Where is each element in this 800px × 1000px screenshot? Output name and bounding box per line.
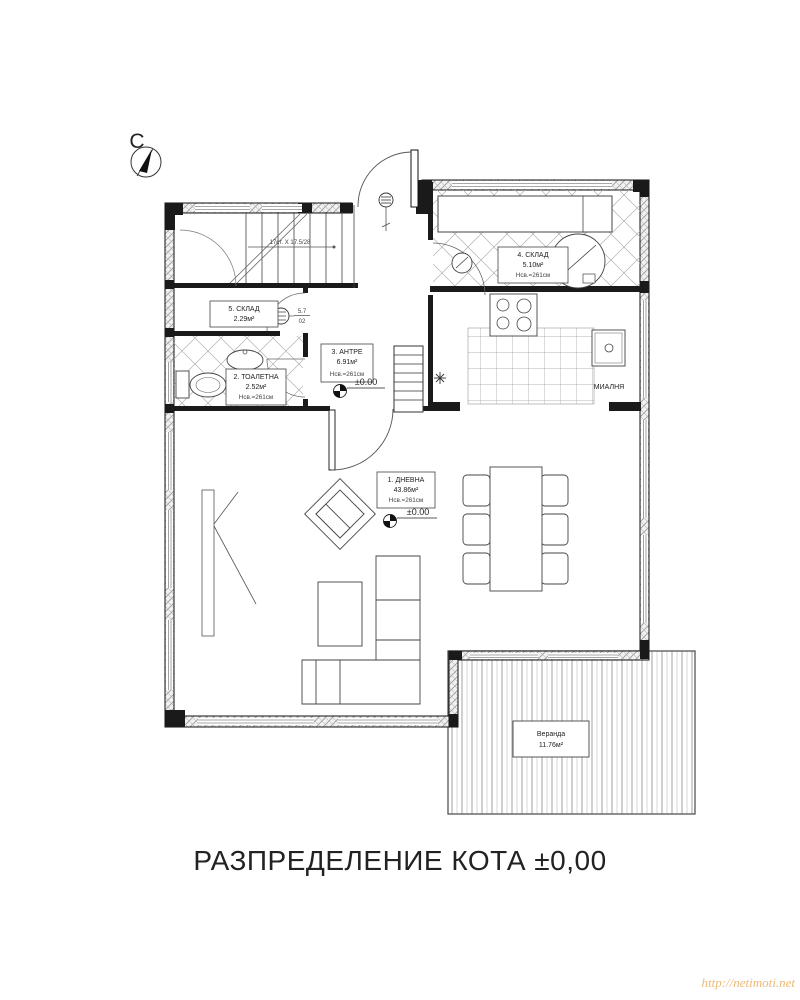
dining-table bbox=[490, 467, 542, 591]
coffee-table bbox=[318, 582, 362, 646]
storage4-area-value: 5.10м² bbox=[523, 262, 544, 269]
dining-chair bbox=[541, 475, 568, 506]
door-tag-numerator: 5.7 bbox=[298, 309, 307, 315]
window-left-living-2 bbox=[166, 510, 173, 588]
plan-title: РАЗПРЕДЕЛЕНИЕ КОТА ±0,00 bbox=[193, 845, 606, 876]
scullery-label: МИАЛНЯ bbox=[594, 384, 624, 391]
dining-chair bbox=[463, 514, 490, 545]
storage5-room: 5.7 02 5. СКЛАД 2.29м² bbox=[210, 293, 310, 331]
dining-chair bbox=[541, 553, 568, 584]
window-top-left-1 bbox=[195, 204, 250, 212]
living-door bbox=[329, 409, 393, 470]
toilet-height-value: Нсв.=261см bbox=[239, 394, 273, 401]
floor-drain-icon bbox=[452, 253, 472, 273]
window-top-left-2 bbox=[262, 204, 302, 212]
window-right-dining-1 bbox=[641, 420, 648, 518]
storage4-counter bbox=[438, 196, 612, 232]
fridge-snowflake-icon bbox=[434, 372, 446, 384]
entry-hall: 3. АНТРЕ 6.91м² Нсв.=261см ±0.00 bbox=[321, 344, 423, 470]
veranda-name: Веранда bbox=[537, 731, 565, 738]
window-right-dining-2 bbox=[641, 535, 648, 623]
window-left-living-3 bbox=[166, 620, 173, 690]
dining-chair bbox=[463, 553, 490, 584]
toilet-bowl-icon bbox=[176, 371, 226, 398]
section-marker-icon bbox=[379, 193, 393, 231]
washbasin-icon bbox=[227, 350, 263, 370]
entry-name: 3. АНТРЕ bbox=[331, 349, 362, 356]
level-marker-living: ±0.00 bbox=[384, 507, 438, 528]
living-height-value: Нсв.=261см bbox=[389, 497, 423, 504]
kitchen-sink-icon bbox=[592, 330, 625, 366]
floor-plan-page: С Веранда 11.76м² bbox=[0, 0, 800, 1000]
living-name: 1. ДНЕВНА bbox=[388, 477, 425, 484]
floor-plan-drawing: С Веранда 11.76м² bbox=[0, 0, 800, 1000]
entry-area-value: 6.91м² bbox=[337, 359, 358, 366]
kitchen-area: МИАЛНЯ bbox=[434, 294, 625, 404]
door-tag-denominator: 02 bbox=[299, 319, 306, 325]
armchair bbox=[305, 479, 376, 550]
entry-door bbox=[358, 150, 418, 231]
window-bottom-1 bbox=[198, 718, 314, 725]
living-area-value: 43.86м² bbox=[394, 487, 419, 494]
entry-steps bbox=[394, 346, 423, 412]
window-right-kitchen bbox=[641, 300, 648, 398]
window-left-living-1 bbox=[166, 432, 173, 490]
stair-note: 17ст. X 17.5/28 bbox=[270, 240, 311, 246]
dining-chair bbox=[541, 514, 568, 545]
storage4-height-value: Нсв.=261см bbox=[516, 272, 550, 279]
window-veranda-1 bbox=[470, 653, 538, 659]
toilet-area-value: 2.52м² bbox=[246, 384, 267, 391]
entry-level-value: ±0.00 bbox=[355, 377, 377, 387]
storage4-name: 4. СКЛАД bbox=[517, 252, 548, 259]
living-level-value: ±0.00 bbox=[407, 507, 429, 517]
corner-tv-unit bbox=[202, 490, 256, 636]
window-left-toilet bbox=[166, 362, 173, 402]
storage4-room: 4. СКЛАД 5.10м² Нсв.=261см bbox=[433, 190, 640, 295]
toilet-room: 2. ТОАЛЕТНА 2.52м² Нсв.=261см bbox=[174, 336, 305, 406]
dining-set bbox=[463, 467, 568, 591]
window-bottom-2 bbox=[338, 718, 438, 725]
stove-icon bbox=[490, 294, 537, 336]
window-top-right bbox=[452, 181, 612, 189]
watermark: http://netimoti.net bbox=[701, 975, 795, 990]
window-veranda-2 bbox=[548, 653, 618, 659]
dining-chair bbox=[463, 475, 490, 506]
veranda-area: Веранда 11.76м² bbox=[448, 651, 695, 814]
veranda-area-value: 11.76м² bbox=[539, 742, 564, 749]
compass-north-icon: С bbox=[129, 130, 161, 177]
toilet-name: 2. ТОАЛЕТНА bbox=[233, 374, 278, 381]
staircase bbox=[180, 205, 354, 288]
storage5-name: 5. СКЛАД bbox=[228, 306, 259, 313]
storage5-area-value: 2.29м² bbox=[234, 316, 255, 323]
